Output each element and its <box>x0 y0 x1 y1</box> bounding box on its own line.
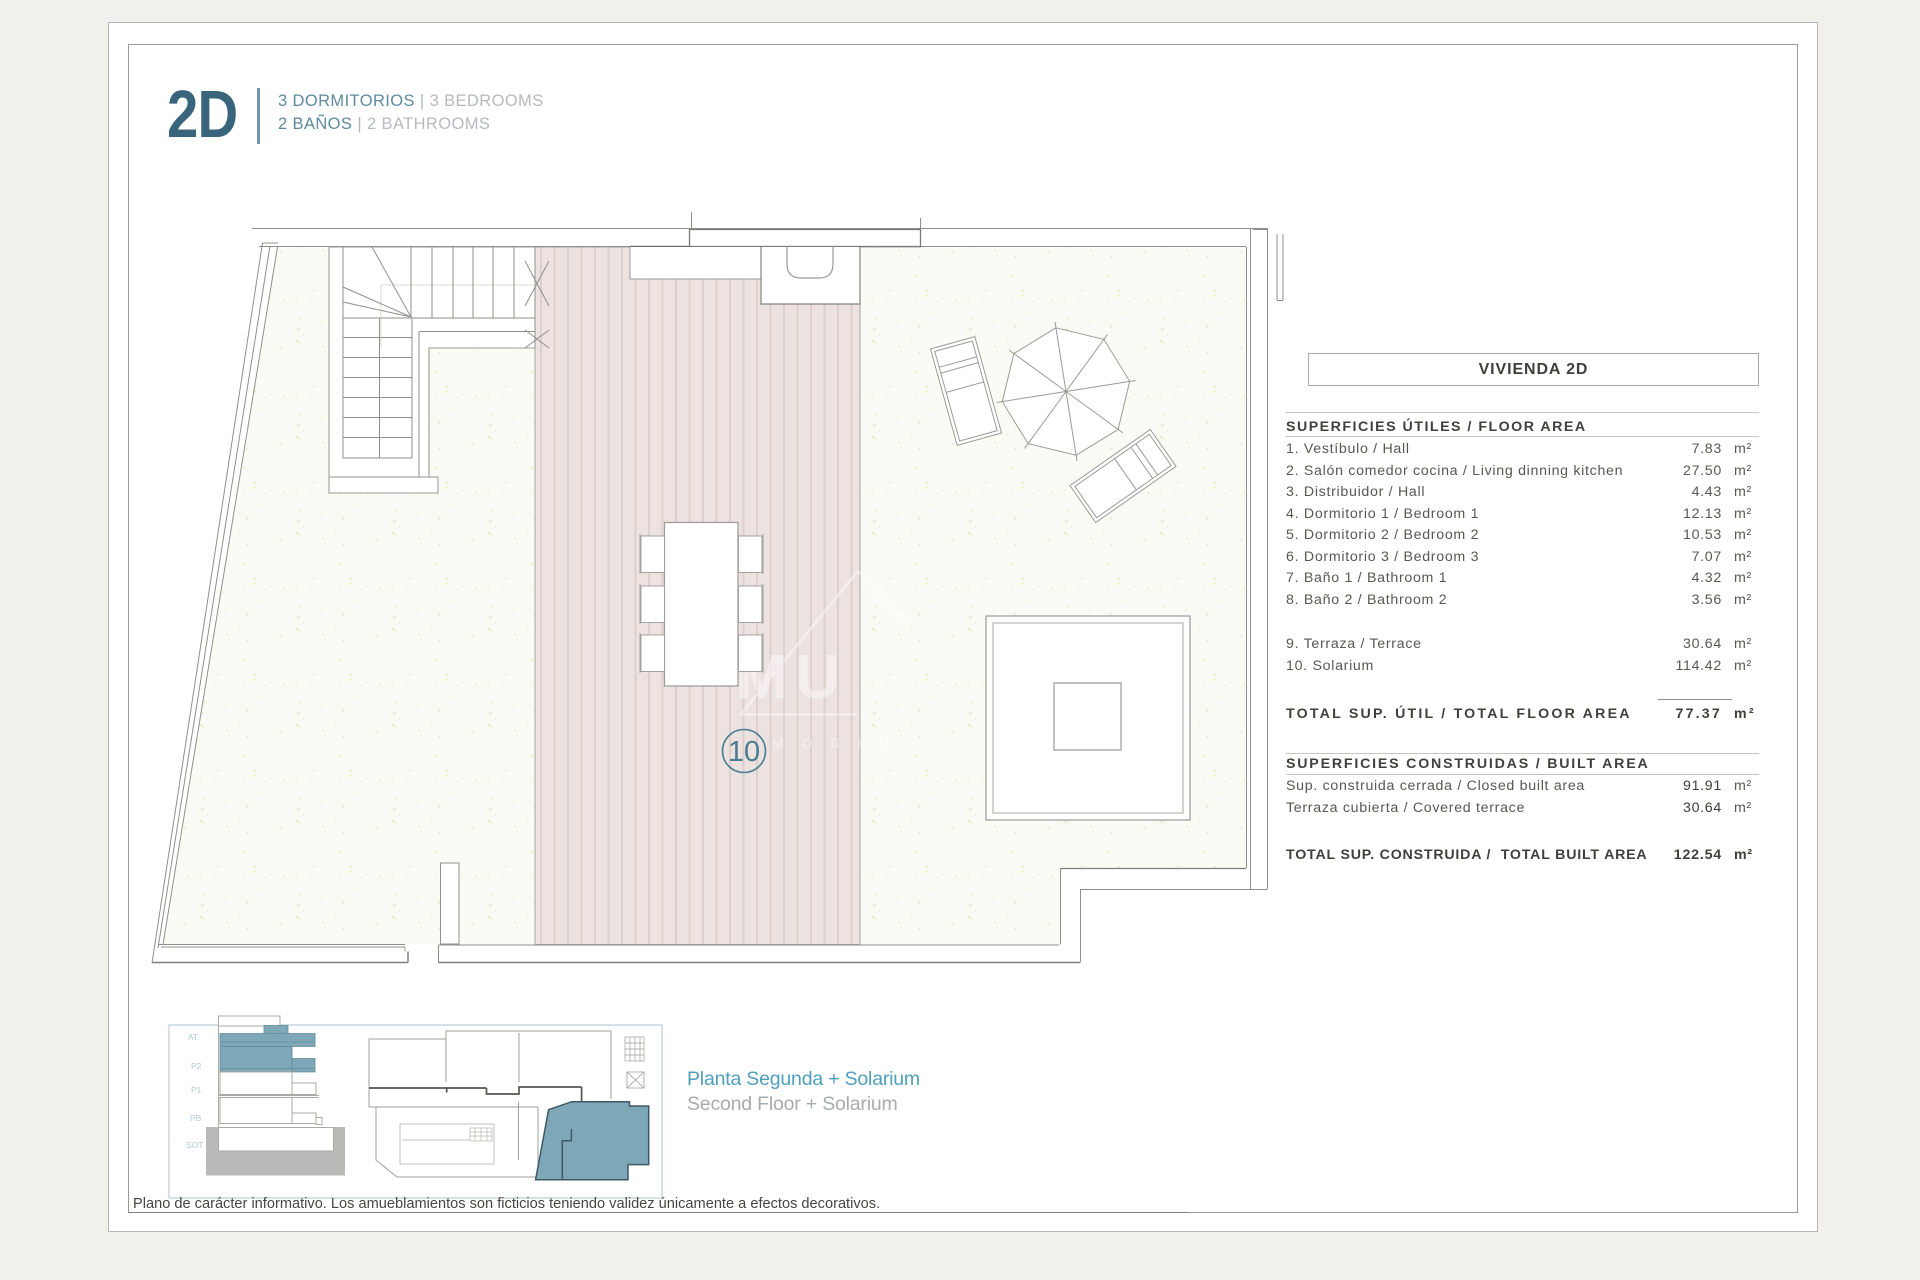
svg-text:M O B I L: M O B I L <box>772 735 894 751</box>
svg-text:10: 10 <box>728 736 760 768</box>
svg-text:U: U <box>795 643 840 712</box>
svg-text:SOT: SOT <box>186 1140 203 1150</box>
svg-text:P2: P2 <box>191 1061 202 1071</box>
svg-text:AT.: AT. <box>188 1032 200 1042</box>
svg-text:P1: P1 <box>191 1085 202 1095</box>
svg-text:PB: PB <box>190 1113 202 1123</box>
